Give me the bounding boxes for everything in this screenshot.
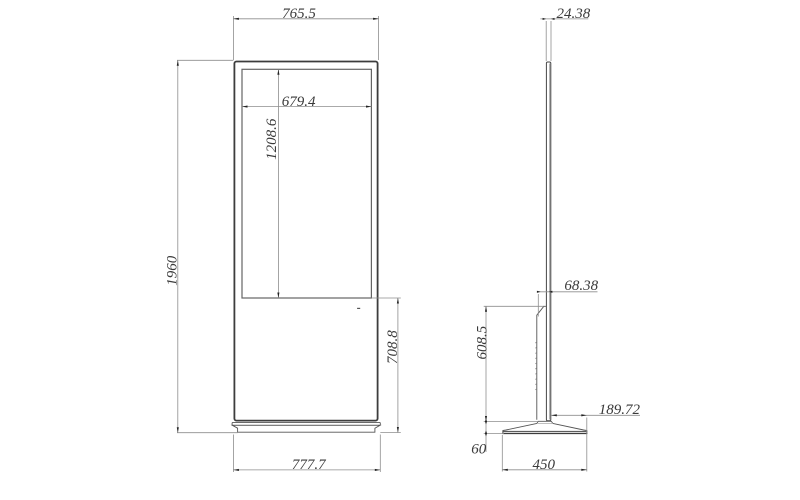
- svg-text:450: 450: [533, 457, 556, 473]
- svg-text:60: 60: [471, 441, 487, 457]
- svg-text:679.4: 679.4: [282, 94, 316, 110]
- svg-text:765.5: 765.5: [282, 6, 316, 22]
- svg-text:708.8: 708.8: [385, 330, 401, 364]
- svg-text:608.5: 608.5: [475, 325, 491, 359]
- svg-text:68.38: 68.38: [564, 278, 598, 294]
- svg-text:777.7: 777.7: [292, 457, 327, 473]
- svg-text:24.38: 24.38: [557, 6, 591, 22]
- svg-text:1960: 1960: [165, 255, 181, 286]
- svg-text:189.72: 189.72: [599, 402, 641, 418]
- svg-text:1208.6: 1208.6: [264, 118, 280, 160]
